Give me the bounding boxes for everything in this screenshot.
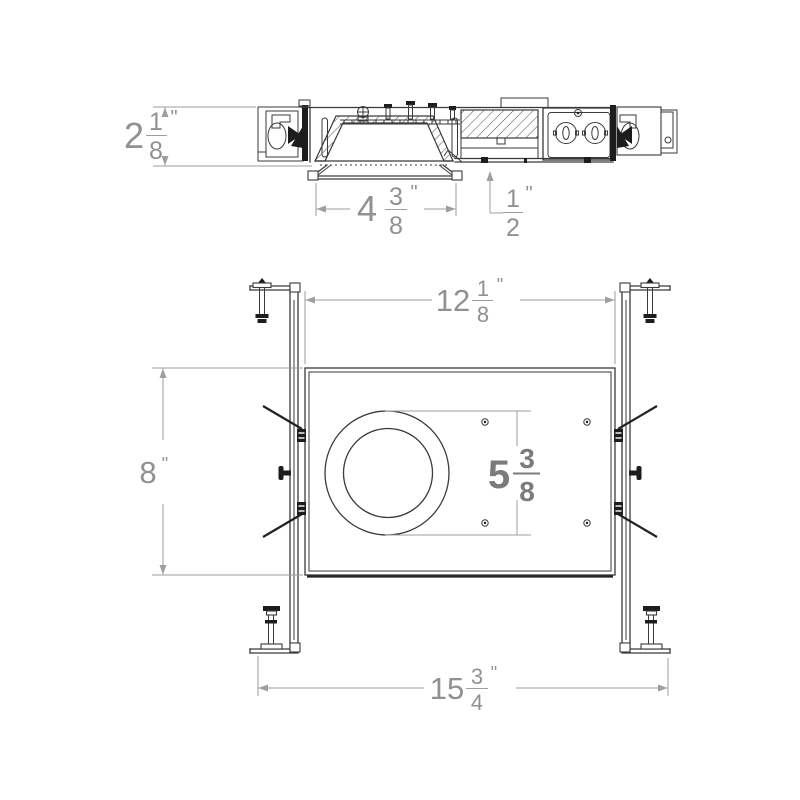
dim-plate-width-whole: 12 — [436, 283, 470, 318]
arrow-right-icon — [446, 206, 456, 213]
dim-aperture-num: 3 — [389, 183, 403, 211]
dim-mount-spacing-num: 3 — [519, 443, 535, 474]
left-mounting-bracket — [258, 100, 310, 161]
adjust-knob-left-icon — [279, 466, 292, 480]
dim-mount-spacing-whole: 5 — [488, 453, 510, 497]
dim-aperture-den: 8 — [389, 212, 403, 240]
aperture-circles — [325, 411, 449, 535]
right-mounting-bracket — [610, 105, 677, 161]
arrow-right-icon — [658, 685, 668, 692]
dim-overall-width-whole: 15 — [430, 671, 464, 706]
arrow-down-icon — [160, 565, 167, 575]
dim-aperture-unit: " — [410, 182, 417, 204]
knockout-right-icon — [583, 123, 608, 144]
arrow-left-icon — [259, 685, 269, 692]
arrow-up-icon — [160, 369, 167, 379]
dim-fixture-height-unit: " — [170, 107, 177, 129]
dim-ceiling-offset: 1 2 " — [487, 171, 533, 242]
dim-plate-width-unit: " — [497, 275, 503, 295]
nail-top-right-icon — [641, 278, 659, 323]
bottom-rail — [455, 157, 613, 163]
dim-plate-width: 12 1 8 " — [305, 275, 615, 364]
dim-offset-unit: " — [525, 183, 532, 205]
knockout-left-icon — [554, 123, 579, 144]
arrow-left-icon — [306, 297, 316, 304]
side-view: 2 1 8 " 4 3 8 " 1 2 " — [124, 98, 677, 242]
hanger-bar-right — [614, 278, 670, 653]
bar-clip — [614, 502, 623, 515]
bar-clip — [614, 429, 623, 442]
trim-flange — [308, 165, 462, 180]
bar-clip — [297, 429, 306, 442]
reflector-cone — [315, 116, 453, 165]
dim-overall-width-den: 4 — [471, 690, 483, 715]
arrow-left-icon — [317, 206, 327, 213]
junction-box — [543, 108, 615, 160]
screw-hole-icon — [584, 520, 590, 526]
arrow-up-icon — [487, 171, 494, 181]
dim-fixture-height-whole: 2 — [124, 115, 144, 156]
dim-mount-spacing: 5 3 8 — [385, 411, 540, 535]
dim-plate-height: 8 " — [139, 368, 303, 575]
mounting-plate — [305, 368, 615, 577]
dim-plate-height-whole: 8 — [139, 455, 156, 490]
driver-block — [444, 110, 538, 162]
dim-offset-den: 2 — [506, 214, 520, 242]
dim-plate-width-num: 1 — [477, 276, 489, 301]
dim-overall-width-num: 3 — [471, 664, 483, 689]
adjust-knob-right-icon — [629, 466, 642, 480]
screw-hole-icon — [482, 520, 488, 526]
arrow-right-icon — [605, 297, 615, 304]
nail-bottom-left-icon — [261, 606, 282, 649]
bar-clip — [297, 502, 306, 515]
hanger-bar-left — [250, 278, 306, 653]
technical-drawing: 2 1 8 " 4 3 8 " 1 2 " — [0, 0, 800, 800]
dim-aperture-whole: 4 — [357, 188, 377, 229]
dim-aperture-width: 4 3 8 " — [316, 182, 456, 240]
dim-plate-height-unit: " — [162, 454, 168, 474]
dim-plate-width-den: 8 — [477, 302, 489, 327]
dim-overall-width-unit: " — [491, 663, 497, 683]
dim-fixture-height-num: 1 — [149, 108, 163, 136]
screw-hole-icon — [584, 419, 590, 425]
screw-hole-icon — [482, 419, 488, 425]
dim-offset-num: 1 — [506, 185, 520, 213]
dim-fixture-height-den: 8 — [149, 137, 163, 165]
dim-mount-spacing-den: 8 — [519, 476, 535, 507]
nail-bottom-right-icon — [641, 606, 662, 649]
dim-overall-width: 15 3 4 " — [258, 656, 668, 715]
plan-view: 12 1 8 " 8 " 5 3 8 — [139, 275, 670, 715]
nail-top-left-icon — [253, 278, 271, 323]
